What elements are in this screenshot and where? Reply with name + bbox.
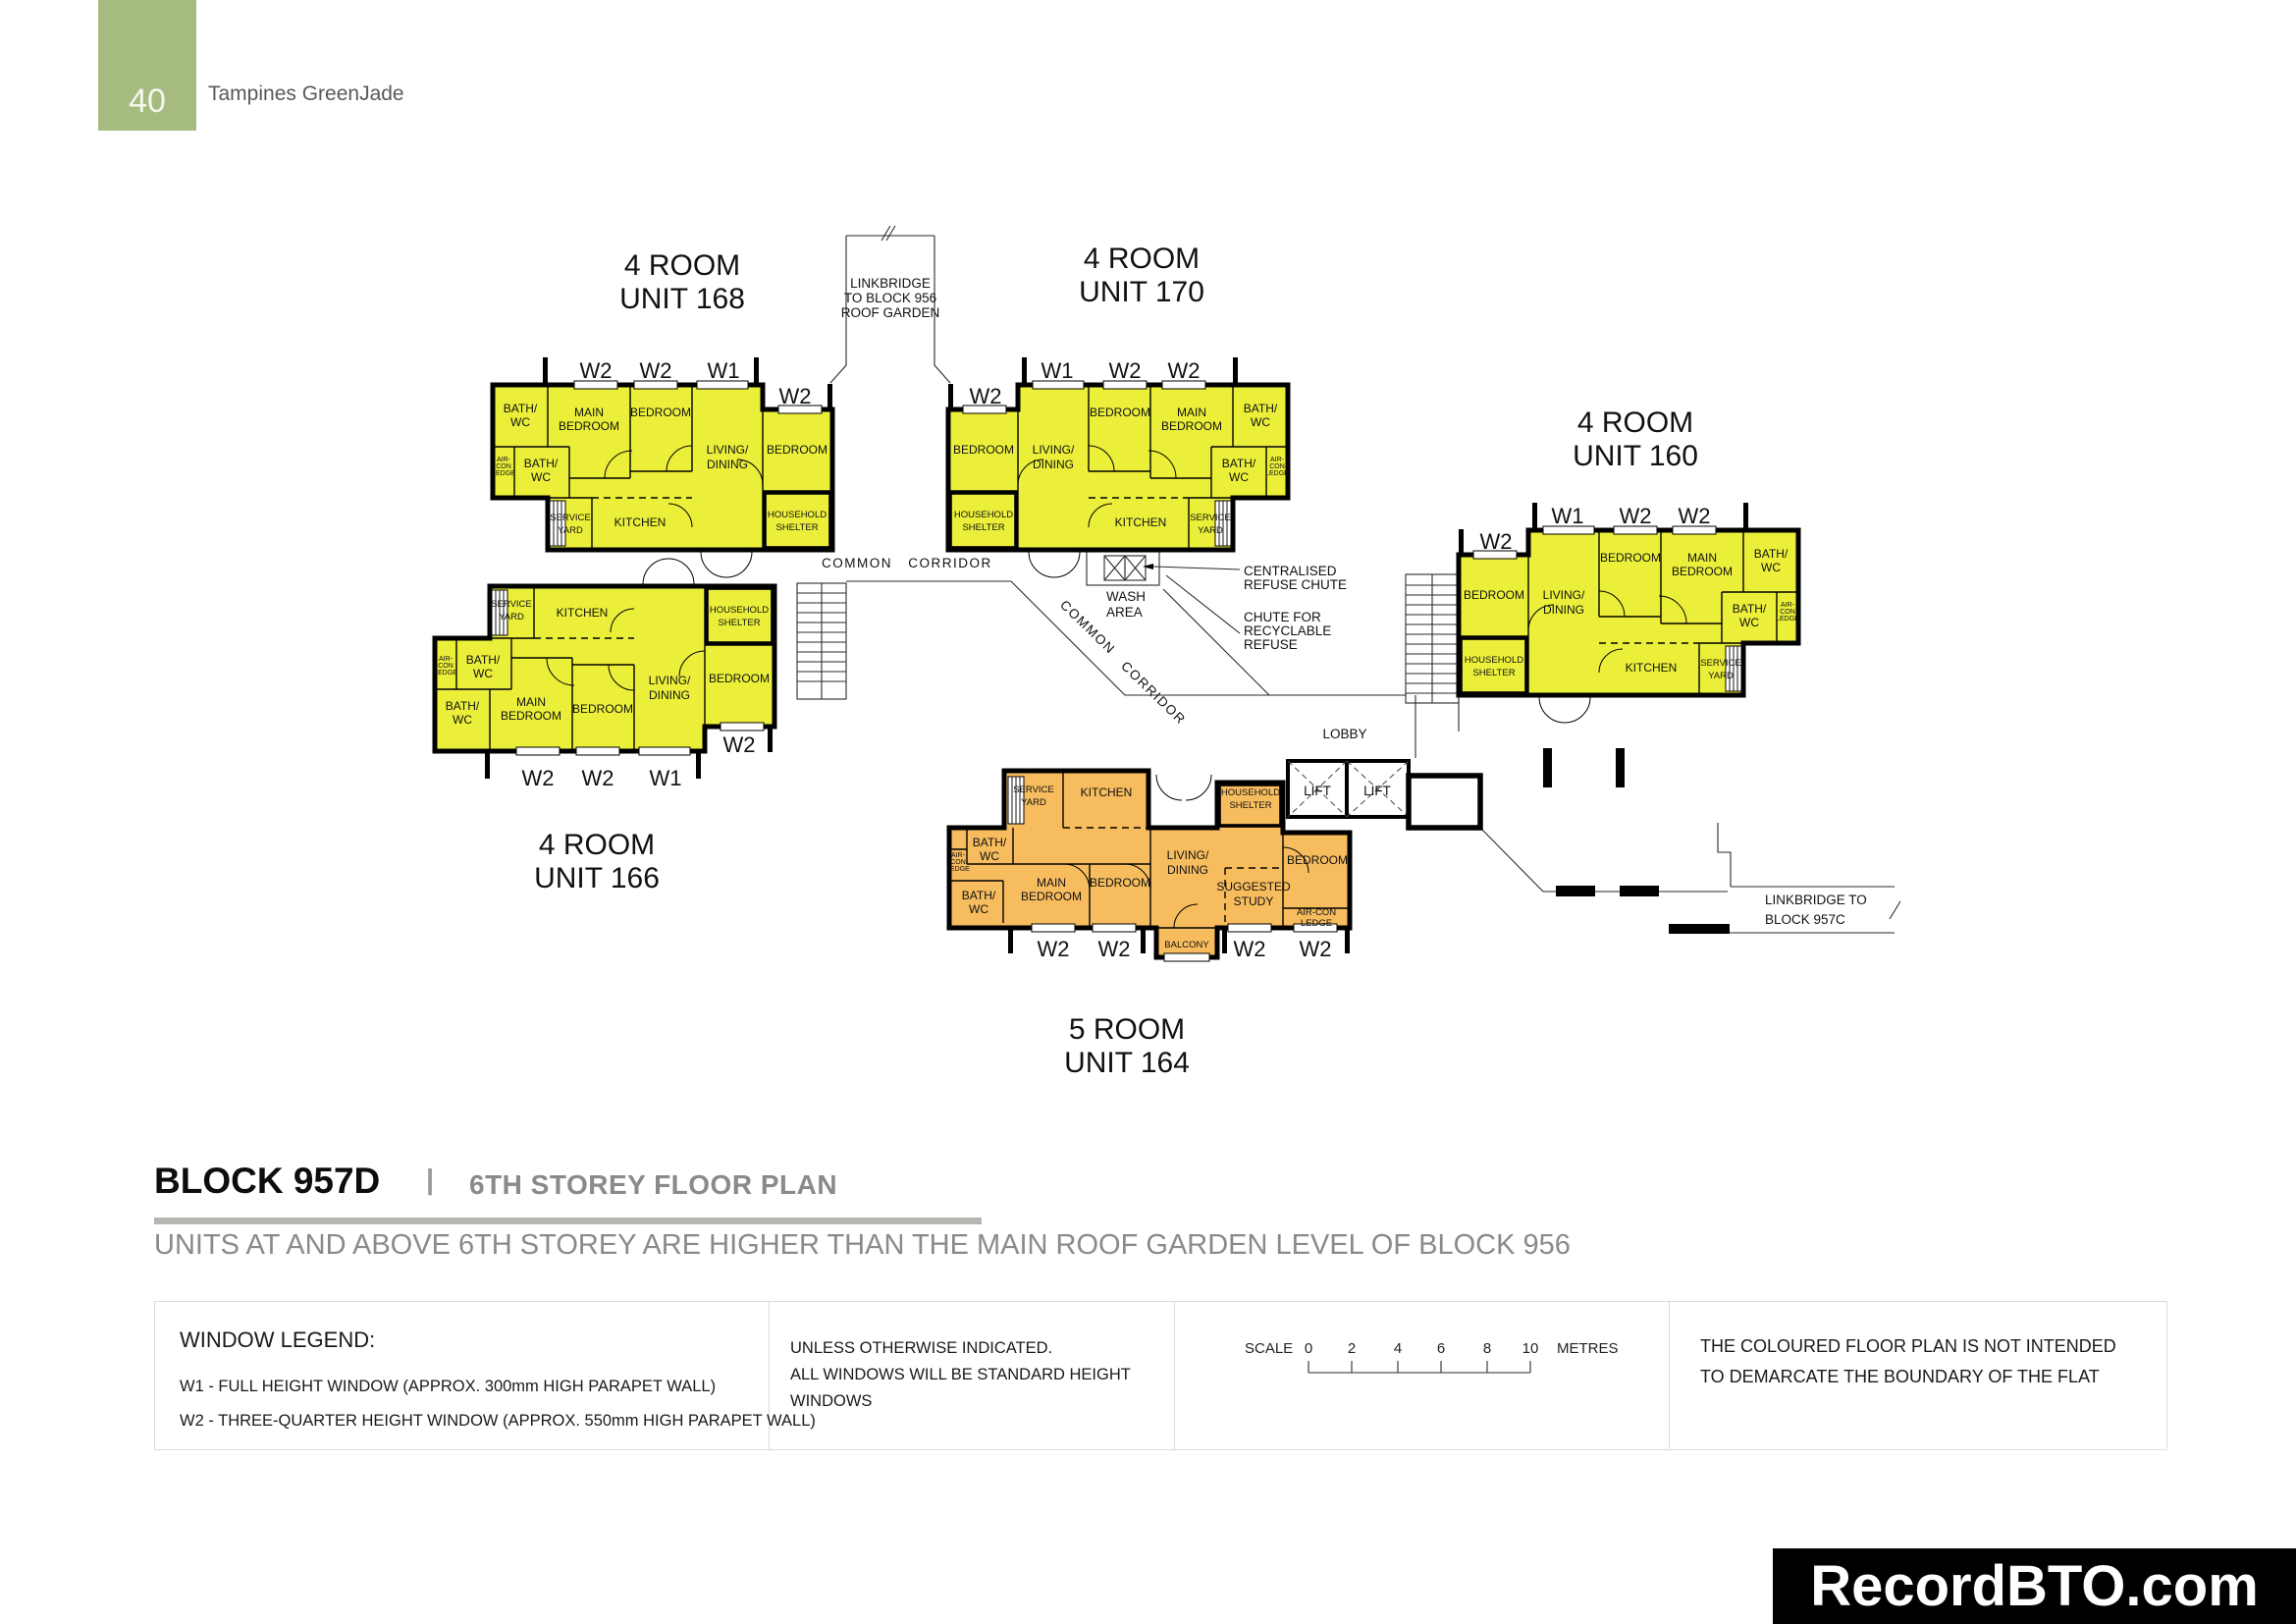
- room-label: MAIN: [1687, 551, 1717, 565]
- room-label: SHELTER: [1229, 800, 1271, 811]
- room-label: SHELTER: [775, 522, 818, 533]
- wash-area-label: WASH: [1106, 589, 1146, 604]
- room-label: HOUSEHOLD: [1465, 655, 1523, 666]
- staircase-left: [797, 583, 846, 699]
- window-label: W1: [650, 766, 682, 790]
- room-label: BEDROOM: [953, 443, 1014, 457]
- windows-note-line: WINDOWS: [790, 1388, 1131, 1415]
- service-duct: [1409, 776, 1480, 828]
- room-label: MAIN: [1037, 876, 1066, 890]
- room-label: BEDROOM: [709, 672, 770, 685]
- window-label: W2: [723, 732, 756, 757]
- room-label: YARD: [1021, 797, 1046, 808]
- windows-note-line: UNLESS OTHERWISE INDICATED.: [790, 1335, 1131, 1362]
- room-label: AIR-: [439, 656, 454, 663]
- heading-divider: |: [426, 1164, 434, 1197]
- linkbridge-957c-label: LINKBRIDGE TO: [1765, 893, 1867, 907]
- room-label: MAIN: [516, 695, 546, 709]
- room-label: MAIN: [574, 406, 604, 419]
- unit-168-floorplan: 4 ROOM UNIT 168 W2 W2 W1 W2 BATH/ WC MAI…: [492, 249, 832, 577]
- room-label: BEDROOM: [1161, 419, 1222, 433]
- room-label: BATH/: [524, 457, 559, 470]
- room-label: BEDROOM: [1464, 588, 1524, 602]
- room-label: BEDROOM: [1672, 565, 1733, 578]
- room-label: YARD: [1198, 525, 1223, 536]
- room-label: BEDROOM: [767, 443, 828, 457]
- refuse-chute-label: CENTRALISED: [1244, 564, 1337, 578]
- room-label: HOUSEHOLD: [768, 510, 827, 520]
- room-label: YARD: [558, 525, 583, 536]
- room-label: KITCHEN: [1115, 515, 1167, 529]
- room-label: AIR-: [1781, 602, 1795, 609]
- room-label: SUGGESTED: [1216, 880, 1291, 893]
- room-label: LIVING/: [707, 443, 749, 457]
- room-label: WC: [510, 415, 530, 429]
- window-label: W2: [1168, 358, 1201, 383]
- room-label: LEDGE: [1301, 918, 1332, 929]
- room-label: BATH/: [446, 699, 480, 713]
- room-label: BEDROOM: [1287, 853, 1348, 867]
- refuse-chute-boxes: [1087, 552, 1159, 585]
- unit-title: UNIT 166: [534, 862, 660, 894]
- room-label: WC: [531, 470, 551, 484]
- block-heading: BLOCK 957D: [154, 1161, 380, 1202]
- room-label: SERVICE: [1190, 513, 1231, 523]
- lift-label: LIFT: [1363, 784, 1391, 798]
- room-label: BATH/: [466, 653, 501, 667]
- windows-note-line: ALL WINDOWS WILL BE STANDARD HEIGHT: [790, 1362, 1131, 1388]
- room-label: AIR-: [951, 852, 966, 859]
- unit-170-floorplan: 4 ROOM UNIT 170 W1 W2 W2 W2 BATH/ WC MAI…: [948, 243, 1289, 577]
- room-label: SERVICE: [550, 513, 591, 523]
- unit-title: 4 ROOM: [1084, 243, 1200, 275]
- room-label: LEDGE: [946, 866, 970, 873]
- room-label: HOUSEHOLD: [954, 510, 1013, 520]
- staircase-right: [1406, 574, 1459, 703]
- room-label: KITCHEN: [614, 515, 667, 529]
- unit-title: 5 ROOM: [1069, 1013, 1185, 1046]
- window-label: W2: [970, 384, 1002, 408]
- common-corridor-label: CORRIDOR: [908, 556, 992, 570]
- watermark-text: RecordBTO.com: [1810, 1553, 2259, 1619]
- room-label: CON: [1269, 463, 1285, 470]
- window-label: W1: [1041, 358, 1074, 383]
- room-label: DINING: [707, 458, 748, 471]
- window-label: W2: [640, 358, 672, 383]
- room-label: LEDGE: [1265, 470, 1289, 477]
- room-label: WC: [473, 667, 493, 680]
- room-label: DINING: [1033, 458, 1074, 471]
- window-label: W2: [1300, 937, 1332, 961]
- window-label: W1: [708, 358, 740, 383]
- room-label: BEDROOM: [1600, 551, 1661, 565]
- unit-title: UNIT 160: [1573, 440, 1698, 472]
- boundary-note-line: TO DEMARCATE THE BOUNDARY OF THE FLAT: [1700, 1362, 2116, 1392]
- room-label: BALCONY: [1164, 940, 1209, 950]
- window-label: W2: [1234, 937, 1266, 961]
- window-legend-title: WINDOW LEGEND:: [180, 1327, 375, 1353]
- linkbridge-956-label: LINKBRIDGE: [850, 276, 931, 291]
- unit-title: 4 ROOM: [539, 829, 655, 861]
- room-label: WC: [1761, 561, 1781, 574]
- room-label: WC: [1251, 415, 1270, 429]
- room-label: AIR-CON: [1297, 907, 1336, 918]
- room-label: HOUSEHOLD: [710, 605, 769, 616]
- unit-title: UNIT 164: [1064, 1047, 1190, 1079]
- room-label: LIVING/: [1033, 443, 1075, 457]
- windows-note: UNLESS OTHERWISE INDICATED. ALL WINDOWS …: [790, 1335, 1131, 1415]
- window-label: W2: [1480, 529, 1513, 554]
- room-label: DINING: [1543, 603, 1584, 617]
- linkbridge-957c-label: BLOCK 957C: [1765, 912, 1845, 927]
- room-label: WC: [1229, 470, 1249, 484]
- room-label: LEDGE: [434, 670, 457, 677]
- window-label: W2: [1109, 358, 1142, 383]
- room-label: BATH/: [1244, 402, 1278, 415]
- room-label: LEDGE: [492, 470, 515, 477]
- room-label: BEDROOM: [572, 702, 633, 716]
- room-label: STUDY: [1234, 894, 1274, 908]
- room-label: BATH/: [1222, 457, 1256, 470]
- room-label: YARD: [1708, 671, 1734, 681]
- unit-title: 4 ROOM: [624, 249, 740, 282]
- lift-label: LIFT: [1304, 784, 1331, 798]
- brochure-page: 40 Tampines GreenJade: [0, 0, 2296, 1624]
- recyclable-chute-label: REFUSE: [1244, 637, 1298, 652]
- room-label: WC: [969, 902, 988, 916]
- room-label: KITCHEN: [1081, 785, 1133, 799]
- room-label: LIVING/: [1167, 848, 1209, 862]
- room-label: SHELTER: [718, 618, 760, 628]
- room-label: DINING: [1167, 863, 1208, 877]
- room-label: LIVING/: [1543, 588, 1585, 602]
- storey-note: UNITS AT AND ABOVE 6TH STOREY ARE HIGHER…: [154, 1229, 1571, 1262]
- room-label: BEDROOM: [501, 709, 561, 723]
- unit-title: 4 ROOM: [1577, 406, 1693, 439]
- room-label: BATH/: [504, 402, 538, 415]
- room-label: WC: [453, 713, 472, 727]
- room-label: SERVICE: [1013, 785, 1054, 795]
- window-label: W2: [582, 766, 614, 790]
- room-label: SERVICE: [1700, 658, 1741, 669]
- legend-divider: [1174, 1301, 1175, 1450]
- unit-title: UNIT 170: [1079, 276, 1204, 308]
- room-label: BEDROOM: [1090, 876, 1150, 890]
- room-label: CON: [496, 463, 511, 470]
- boundary-note: THE COLOURED FLOOR PLAN IS NOT INTENDED …: [1700, 1331, 2116, 1392]
- room-label: WC: [1739, 616, 1759, 629]
- room-label: HOUSEHOLD: [1221, 787, 1280, 798]
- boundary-piers: [1543, 748, 1730, 934]
- room-label: BATH/: [962, 889, 996, 902]
- leader-lines: [1143, 564, 1240, 633]
- room-label: AIR-: [497, 457, 511, 463]
- wash-area-label: AREA: [1106, 605, 1143, 620]
- room-label: LIVING/: [649, 674, 691, 687]
- linkbridge-956-label: TO BLOCK 956: [844, 291, 936, 305]
- heading-underline: [154, 1218, 982, 1224]
- watermark: RecordBTO.com: [1773, 1548, 2296, 1624]
- room-label: BEDROOM: [1021, 890, 1082, 903]
- room-label: BATH/: [973, 836, 1007, 849]
- room-label: KITCHEN: [557, 606, 609, 620]
- room-label: SHELTER: [1472, 668, 1515, 678]
- room-label: BATH/: [1733, 602, 1767, 616]
- refuse-chute-label: REFUSE CHUTE: [1244, 577, 1347, 592]
- lobby-label: LOBBY: [1322, 727, 1366, 741]
- window-label: W2: [522, 766, 555, 790]
- common-corridor-label: COMMON: [822, 556, 892, 570]
- room-label: SHELTER: [962, 522, 1004, 533]
- room-label: CON: [438, 663, 454, 670]
- window-label: W2: [1098, 937, 1131, 961]
- window-label: W2: [1679, 504, 1711, 528]
- legend-divider: [1669, 1301, 1670, 1450]
- room-label: BEDROOM: [630, 406, 691, 419]
- window-legend-w2: W2 - THREE-QUARTER HEIGHT WINDOW (APPROX…: [180, 1412, 816, 1431]
- room-label: BATH/: [1754, 547, 1789, 561]
- storey-title: 6TH STOREY FLOOR PLAN: [469, 1169, 837, 1201]
- recyclable-chute-label: CHUTE FOR: [1244, 610, 1321, 624]
- window-label: W1: [1552, 504, 1584, 528]
- window-label: W2: [580, 358, 613, 383]
- unit-166-floorplan: 4 ROOM UNIT 166 W2 W2 W1 W2 BATH/ WC MAI…: [434, 559, 774, 894]
- room-label: AIR-: [1270, 457, 1285, 463]
- window-label: W2: [779, 384, 812, 408]
- window-label: W2: [1620, 504, 1652, 528]
- room-label: YARD: [499, 612, 524, 623]
- room-label: MAIN: [1177, 406, 1206, 419]
- unit-160-floorplan: 4 ROOM UNIT 160 W1 W2 W2 W2 BATH/ WC MAI…: [1459, 406, 1799, 723]
- recyclable-chute-label: RECYCLABLE: [1244, 623, 1331, 638]
- common-corridor-label: CORRIDOR: [1118, 659, 1189, 728]
- room-label: BEDROOM: [559, 419, 619, 433]
- room-label: DINING: [649, 688, 690, 702]
- boundary-note-line: THE COLOURED FLOOR PLAN IS NOT INTENDED: [1700, 1331, 2116, 1362]
- room-label: BEDROOM: [1090, 406, 1150, 419]
- room-label: KITCHEN: [1626, 661, 1678, 675]
- window-label: W2: [1038, 937, 1070, 961]
- room-label: CON: [1780, 609, 1795, 616]
- room-label: SERVICE: [491, 599, 532, 610]
- room-label: WC: [980, 849, 999, 863]
- room-label: CON: [950, 859, 966, 866]
- room-label: LEDGE: [1776, 616, 1799, 623]
- window-legend-w1: W1 - FULL HEIGHT WINDOW (APPROX. 300mm H…: [180, 1378, 716, 1396]
- unit-title: UNIT 168: [619, 283, 745, 315]
- linkbridge-956-label: ROOF GARDEN: [841, 305, 940, 320]
